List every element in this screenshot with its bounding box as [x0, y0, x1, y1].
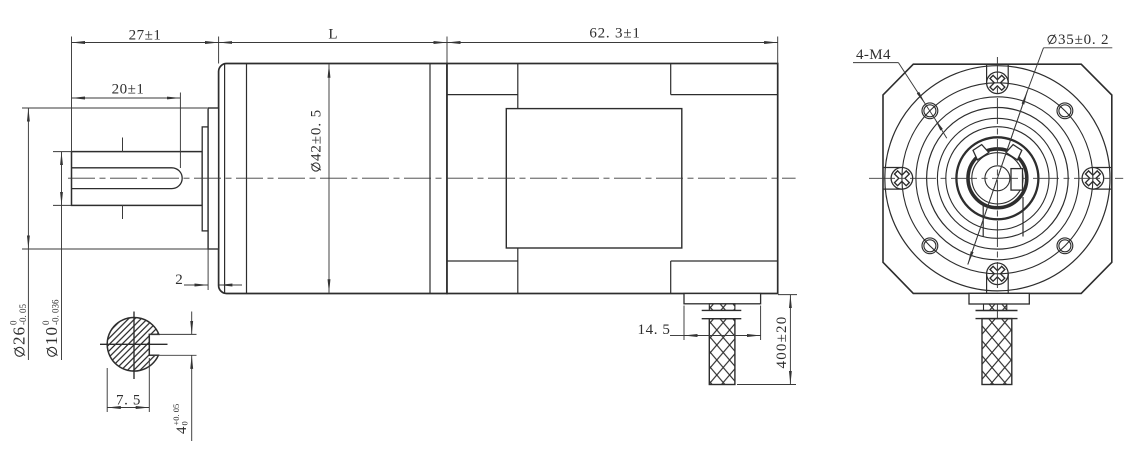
svg-text:L: L [328, 27, 337, 43]
svg-text:35±0. 2: 35±0. 2 [1058, 32, 1109, 48]
svg-text:26: 26 [10, 326, 29, 345]
svg-text:14. 5: 14. 5 [638, 322, 671, 338]
svg-text:0: 0 [41, 320, 51, 325]
svg-text:-0. 05: -0. 05 [18, 304, 28, 325]
svg-text:0: 0 [9, 320, 19, 325]
svg-text:-0. 036: -0. 036 [51, 299, 61, 325]
svg-text:27±1: 27±1 [129, 28, 162, 44]
svg-text:10: 10 [42, 326, 61, 345]
svg-text:2: 2 [175, 272, 183, 288]
svg-text:400±20: 400±20 [774, 316, 790, 369]
svg-text:0: 0 [180, 421, 190, 425]
svg-text:42±0. 5: 42±0. 5 [309, 109, 325, 161]
svg-text:62. 3±1: 62. 3±1 [589, 26, 640, 42]
svg-text:7. 5: 7. 5 [116, 393, 141, 409]
svg-text:4: 4 [174, 426, 190, 434]
svg-text:20±1: 20±1 [112, 82, 145, 98]
svg-text:4-M4: 4-M4 [856, 47, 891, 63]
